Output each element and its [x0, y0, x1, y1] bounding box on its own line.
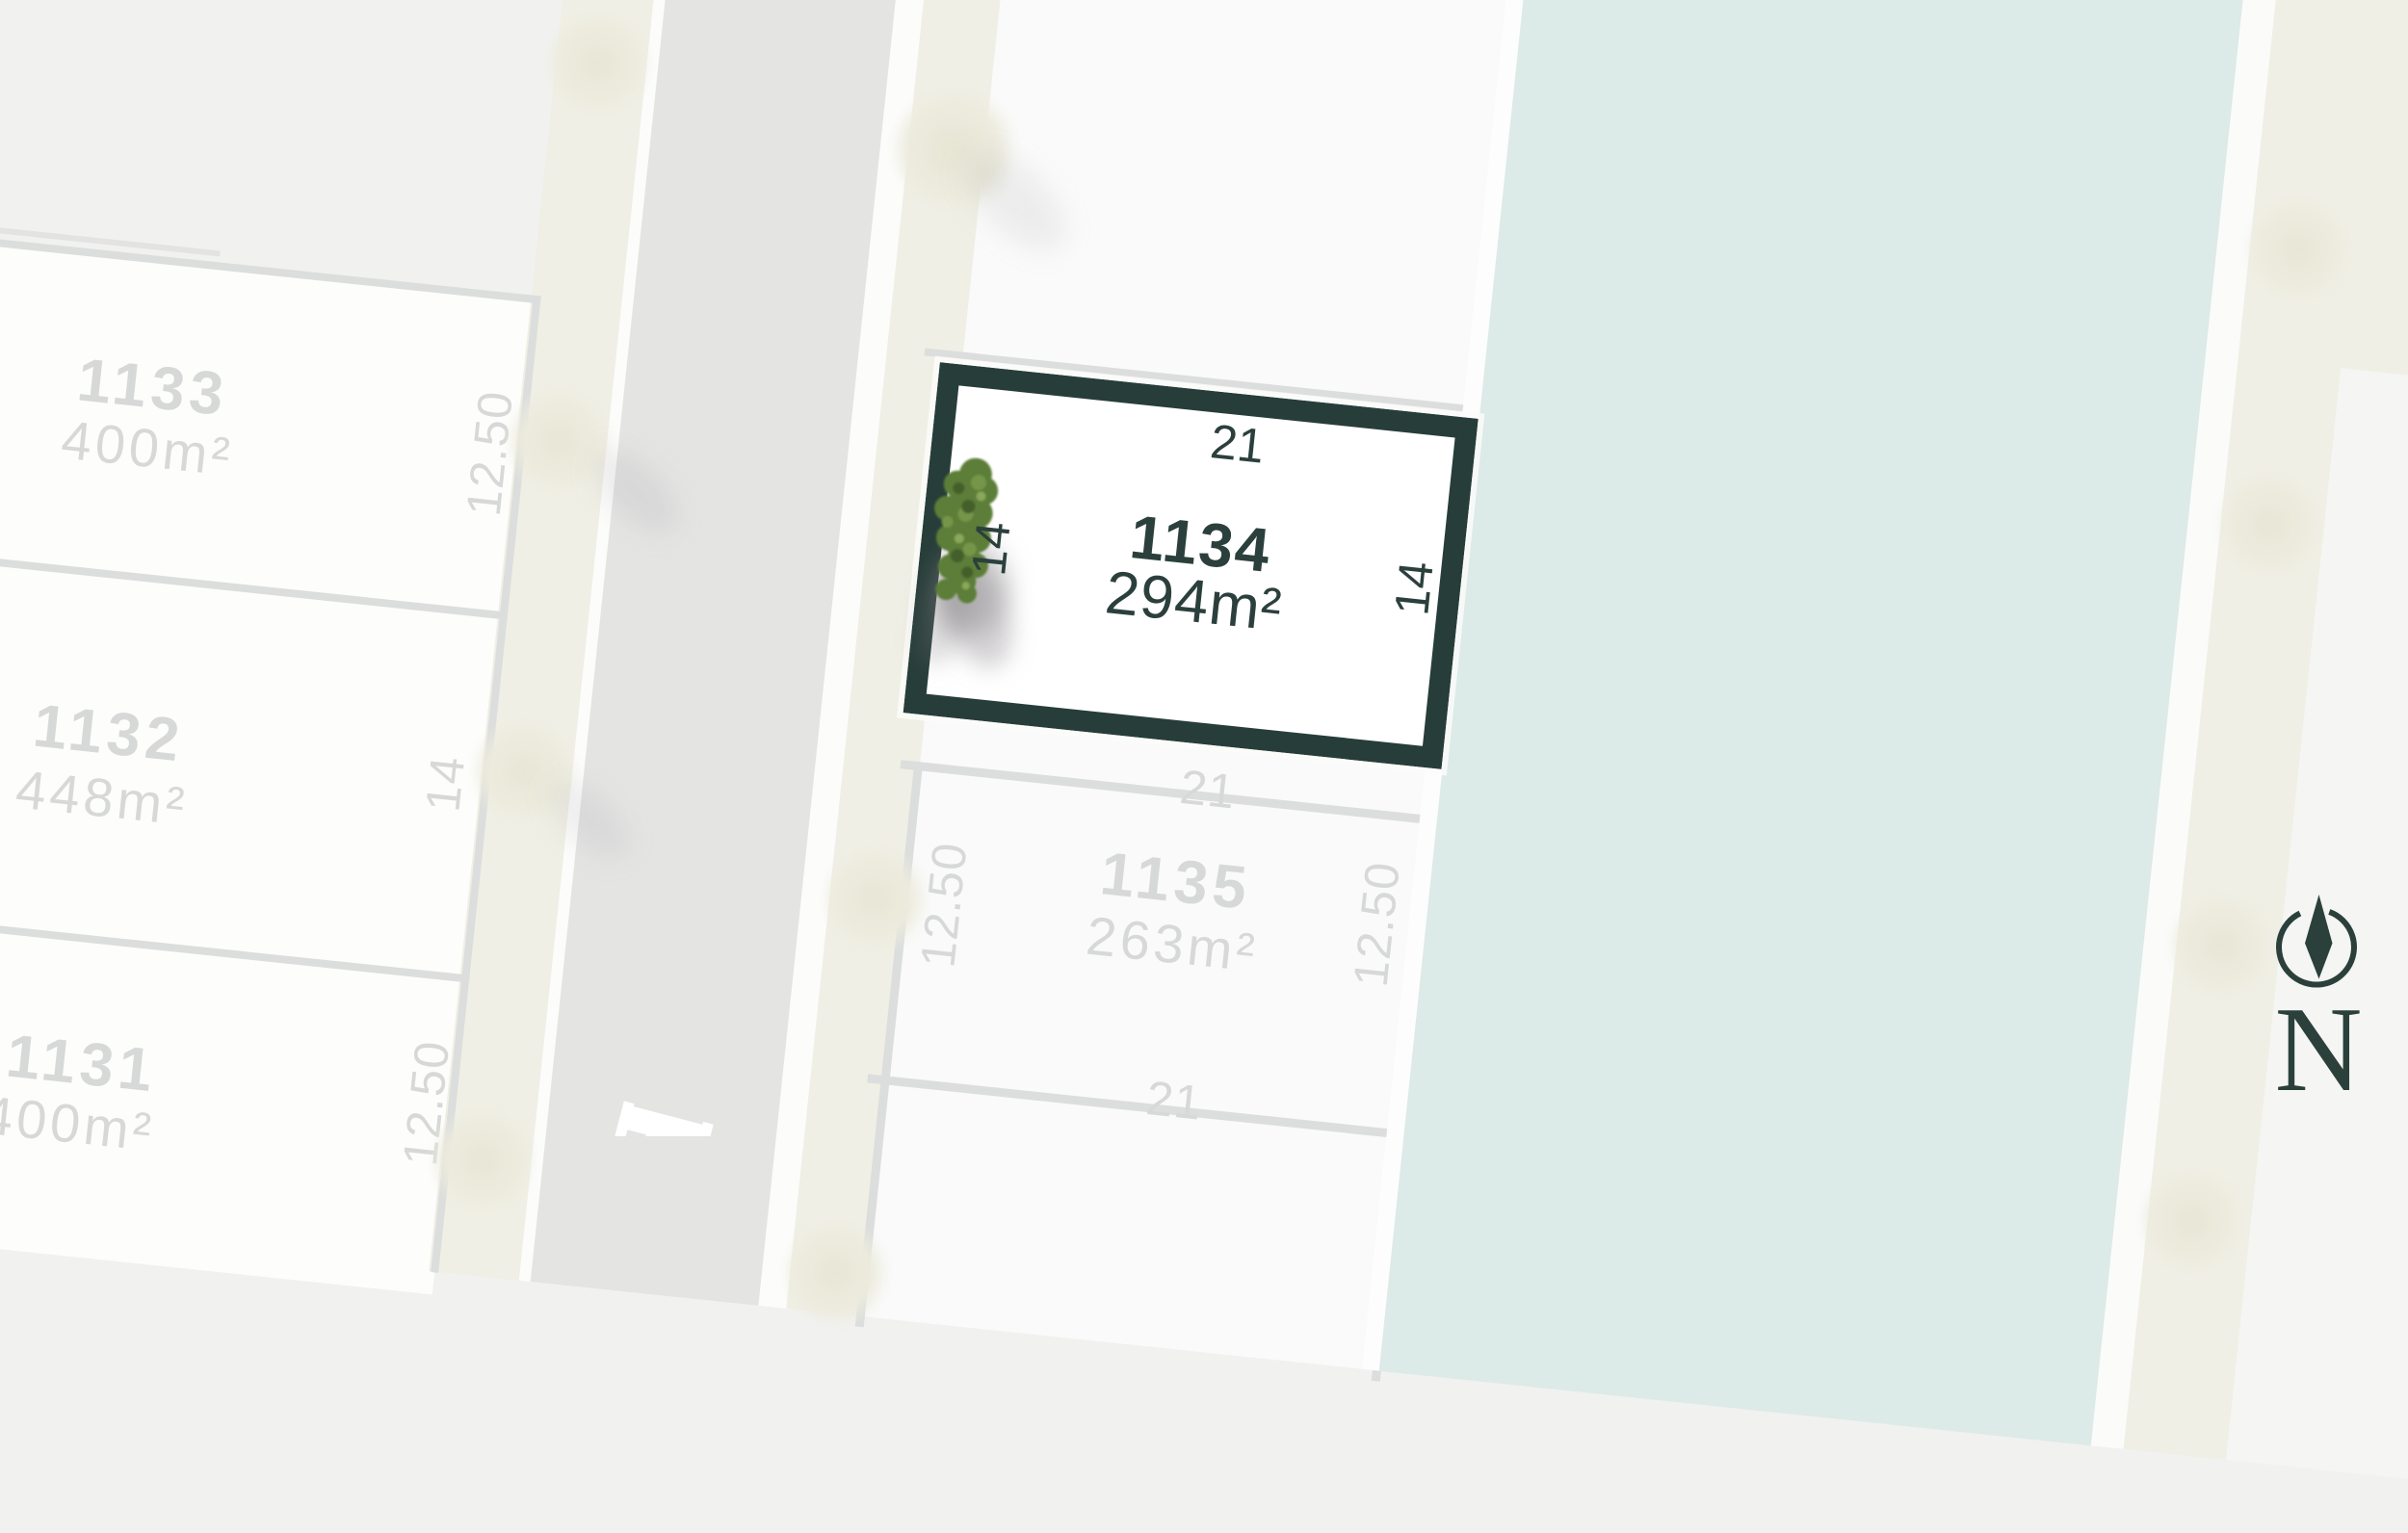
- svg-text:N: N: [2275, 983, 2363, 1107]
